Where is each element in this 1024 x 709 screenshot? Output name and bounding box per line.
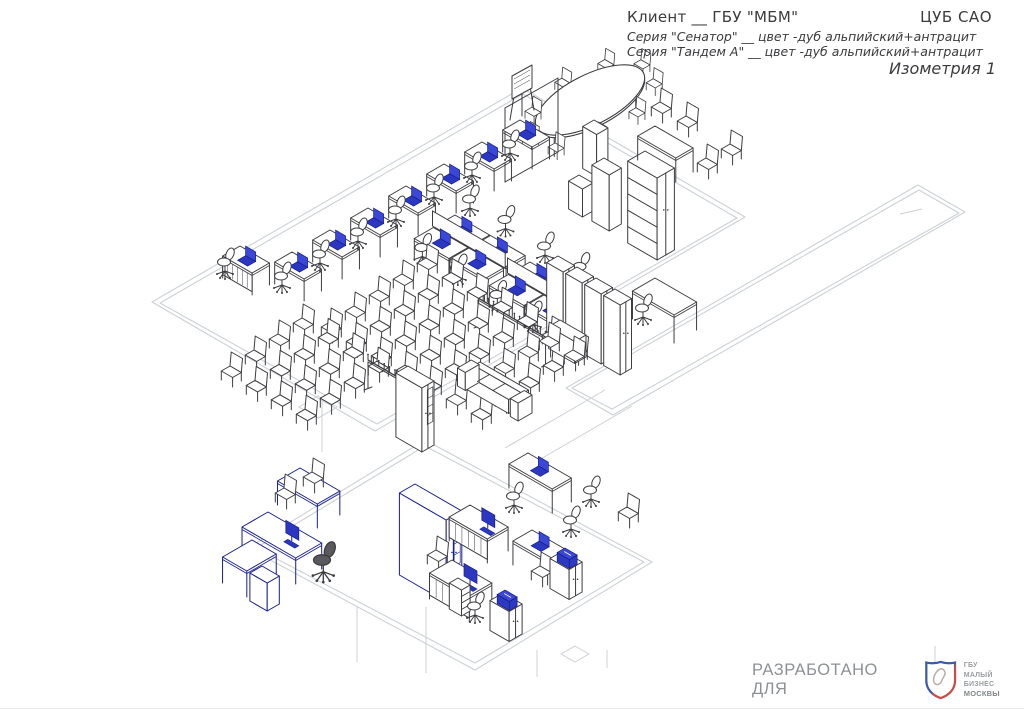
series-tandem-label: Серия "Тандем А" __ цвет -дуб альпийский… (627, 44, 983, 59)
footer: РАЗРАБОТАНО ДЛЯ ГБУ МАЛЫЙ БИЗНЕС МОСКВЫ (752, 660, 1024, 700)
display-cabinet (396, 366, 434, 452)
tall-shelf-cabinet (628, 151, 675, 260)
series-senator-label: Серия "Сенатор" __ цвет -дуб альпийский+… (627, 29, 976, 44)
classroom-chairs-left (221, 304, 389, 430)
logo-line-1: ГБУ (964, 661, 1024, 670)
client-label: Клиент __ ГБУ "МБМ" (627, 8, 798, 26)
cchair (721, 130, 742, 165)
mbm-logo-text: ГБУ МАЛЫЙ БИЗНЕС МОСКВЫ (964, 661, 1024, 698)
cabinet (592, 158, 621, 231)
ochair (562, 505, 582, 538)
drawing-sheet: Клиент __ ГБУ "МБМ" ЦУБ САО Серия "Сенат… (0, 0, 1024, 709)
cchair (531, 552, 552, 587)
pedestal-cabinet (569, 175, 593, 217)
cchair (618, 493, 639, 528)
logo-line-2: МАЛЫЙ БИЗНЕС (964, 671, 1024, 689)
drawer-pedestal (449, 578, 470, 616)
logo-line-3: МОСКВЫ (964, 689, 1024, 699)
cchair (677, 102, 698, 137)
mbm-logo: ГБУ МАЛЫЙ БИЗНЕС МОСКВЫ (924, 660, 1024, 700)
exec-pedestal (250, 566, 279, 611)
cchair (651, 88, 672, 123)
wardrobe (604, 289, 632, 375)
mbm-logo-shield (924, 660, 957, 700)
isometric-scene (0, 0, 1024, 708)
ochair (582, 475, 602, 508)
developed-for-label: РАЗРАБОТАНО ДЛЯ (752, 661, 915, 699)
cchair (697, 144, 718, 179)
view-title: Изометрия 1 (889, 59, 996, 78)
cchair (275, 474, 296, 509)
location-label: ЦУБ САО (920, 8, 992, 26)
